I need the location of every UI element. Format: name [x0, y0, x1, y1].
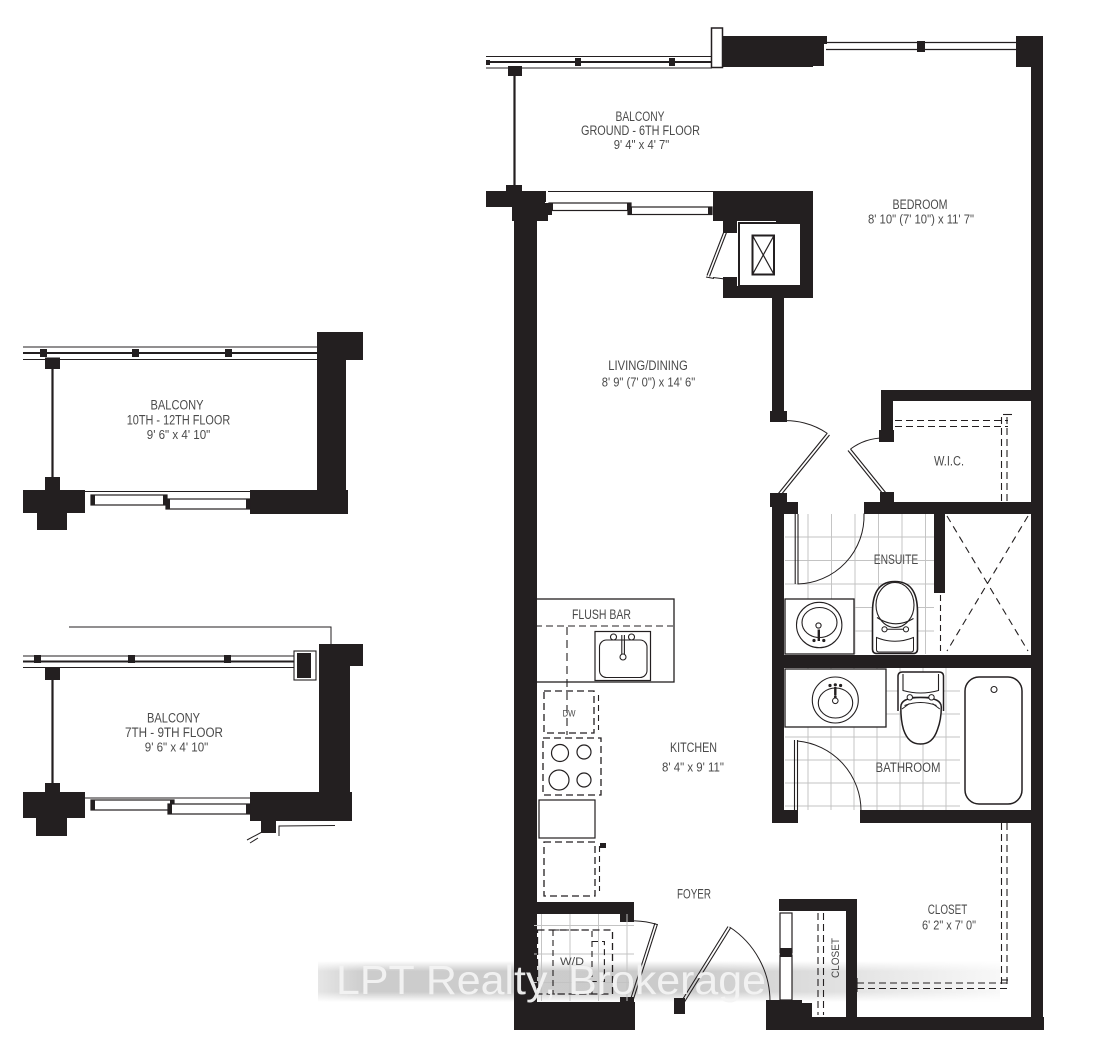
svg-text:7TH - 9TH FLOOR: 7TH - 9TH FLOOR	[125, 725, 223, 740]
svg-text:FOYER: FOYER	[677, 887, 711, 902]
svg-text:8' 10" (7' 10") x 11' 7": 8' 10" (7' 10") x 11' 7"	[868, 213, 974, 227]
svg-text:6' 2" x 7' 0": 6' 2" x 7' 0"	[922, 919, 976, 933]
svg-text:BATHROOM: BATHROOM	[876, 760, 941, 775]
svg-text:9' 4" x 4' 7": 9' 4" x 4' 7"	[614, 138, 670, 152]
svg-text:LIVING/DINING: LIVING/DINING	[608, 358, 688, 373]
svg-text:FLUSH BAR: FLUSH BAR	[572, 607, 631, 622]
svg-text:DW: DW	[563, 709, 576, 720]
svg-text:9' 6" x 4' 10": 9' 6" x 4' 10"	[145, 741, 209, 755]
svg-text:BALCONY: BALCONY	[151, 398, 204, 413]
svg-text:8' 4" x 9' 11": 8' 4" x 9' 11"	[662, 761, 724, 775]
svg-text:ENSUITE: ENSUITE	[874, 552, 919, 567]
svg-text:GROUND - 6TH FLOOR: GROUND - 6TH FLOOR	[581, 123, 700, 138]
svg-text:9' 6" x 4' 10": 9' 6" x 4' 10"	[147, 428, 211, 442]
svg-text:CLOSET: CLOSET	[830, 938, 842, 978]
svg-text:BEDROOM: BEDROOM	[893, 197, 948, 212]
svg-text:10TH - 12TH FLOOR: 10TH - 12TH FLOOR	[127, 413, 231, 428]
svg-text:BALCONY: BALCONY	[616, 109, 665, 124]
svg-text:W.I.C.: W.I.C.	[934, 454, 964, 469]
svg-text:8' 9" (7' 0") x 14' 6": 8' 9" (7' 0") x 14' 6"	[602, 376, 696, 390]
svg-text:CLOSET: CLOSET	[928, 902, 968, 917]
svg-text:BALCONY: BALCONY	[147, 711, 200, 726]
svg-text:KITCHEN: KITCHEN	[670, 740, 717, 755]
svg-text:LPT Realty, Brokerage: LPT Realty, Brokerage	[336, 957, 766, 1003]
